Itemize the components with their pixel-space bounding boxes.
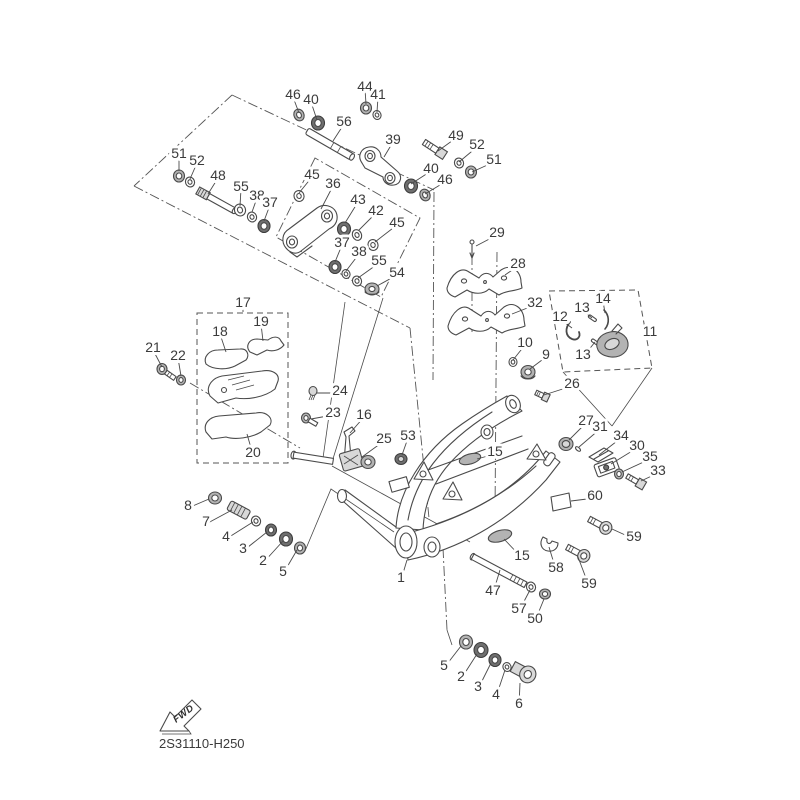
callout-11-33: 11 bbox=[643, 323, 658, 339]
callout-23-53: 23 bbox=[325, 404, 341, 420]
callout-51-9: 51 bbox=[171, 145, 187, 161]
part-54-collar-flanged bbox=[365, 283, 379, 295]
part-40-bearing-a bbox=[312, 116, 325, 130]
callout-38-21: 38 bbox=[351, 243, 367, 259]
callout-3-72: 3 bbox=[474, 678, 482, 694]
callout-7-61: 7 bbox=[202, 513, 210, 529]
part-29-pin bbox=[470, 240, 474, 258]
part-51-nut-b bbox=[466, 166, 477, 178]
part-7-adjuster-plug bbox=[227, 501, 251, 520]
callout-3-63: 3 bbox=[239, 540, 247, 556]
callout-49-6: 49 bbox=[448, 127, 464, 143]
callout-6-74: 6 bbox=[515, 695, 523, 711]
callout-56-4: 56 bbox=[336, 113, 352, 129]
callout-50-69: 50 bbox=[527, 610, 543, 626]
callout-36-16: 36 bbox=[325, 175, 341, 191]
parts-diagram-page: 4640444156394952515152485538374536434245… bbox=[0, 0, 800, 800]
callout-48-11: 48 bbox=[210, 167, 226, 183]
callout-13-30: 13 bbox=[574, 299, 590, 315]
callout-52-10: 52 bbox=[189, 152, 205, 168]
part-10-washer bbox=[509, 358, 517, 367]
callout-31-38: 31 bbox=[592, 418, 608, 434]
callout-26-36: 26 bbox=[564, 375, 580, 391]
callout-16-54: 16 bbox=[356, 406, 372, 422]
callout-59-44: 59 bbox=[626, 528, 642, 544]
part-31-pin bbox=[575, 446, 582, 452]
callout-37-20: 37 bbox=[334, 234, 350, 250]
part-12-clip bbox=[566, 322, 579, 340]
part-52-washer-left bbox=[184, 176, 196, 188]
callout-29-26: 29 bbox=[489, 224, 505, 240]
callout-55-12: 55 bbox=[233, 178, 249, 194]
part-48-bolt bbox=[196, 187, 238, 215]
part-3-seal-b bbox=[489, 654, 501, 667]
callout-24-52: 24 bbox=[332, 382, 348, 398]
part-36-relay-arm bbox=[283, 205, 337, 257]
callout-52-7: 52 bbox=[469, 136, 485, 152]
part-59-bolt-a bbox=[586, 513, 614, 536]
callout-2-71: 2 bbox=[457, 668, 465, 684]
part-5-washer-b bbox=[460, 635, 473, 649]
diagram-canvas: 4640444156394952515152485538374536434245… bbox=[0, 0, 800, 800]
callout-33-42: 33 bbox=[650, 462, 666, 478]
part-46-seal-a bbox=[292, 107, 306, 122]
callout-55-22: 55 bbox=[371, 252, 387, 268]
callout-19-49: 19 bbox=[253, 313, 269, 329]
part-3-seal-a bbox=[266, 524, 277, 536]
part-26-bolt bbox=[534, 389, 550, 402]
part-60-label-plate bbox=[551, 493, 571, 511]
part-8-nut bbox=[209, 492, 222, 504]
callout-45-15: 45 bbox=[304, 166, 320, 182]
callout-10-34: 10 bbox=[517, 334, 533, 350]
callout-5-65: 5 bbox=[279, 563, 287, 579]
callout-47-67: 47 bbox=[485, 582, 501, 598]
callout-53-56: 53 bbox=[400, 427, 416, 443]
part-24-bolt bbox=[309, 387, 317, 401]
part-38-washer-b bbox=[341, 268, 352, 279]
callout-8-60: 8 bbox=[184, 497, 192, 513]
callout-25-55: 25 bbox=[376, 430, 392, 446]
part-46-seal-b bbox=[418, 187, 432, 202]
part-42-collar bbox=[351, 228, 364, 242]
callout-40-1: 40 bbox=[303, 91, 319, 107]
part-2-bearing-a bbox=[280, 532, 293, 546]
callout-2-64: 2 bbox=[259, 552, 267, 568]
callout-20-57: 20 bbox=[245, 444, 261, 460]
callout-58-45: 58 bbox=[548, 559, 564, 575]
part-11-chain-tensioner bbox=[597, 324, 628, 357]
part-6-plug bbox=[509, 659, 539, 686]
part-22-bushing bbox=[177, 375, 186, 385]
part-49-bolt bbox=[422, 138, 448, 159]
callout-18-48: 18 bbox=[212, 323, 228, 339]
part-39-relay-bracket bbox=[360, 147, 401, 185]
part-37-bearing-a bbox=[258, 220, 270, 233]
part-38-washer-a bbox=[246, 211, 258, 223]
part-25-pivot-shaft bbox=[290, 448, 375, 471]
callout-51-8: 51 bbox=[486, 151, 502, 167]
callout-13-32: 13 bbox=[575, 346, 591, 362]
fwd-arrow: FWD bbox=[160, 700, 201, 734]
part-18-guard bbox=[205, 349, 248, 369]
callout-59-46: 59 bbox=[581, 575, 597, 591]
callout-15-59: 15 bbox=[514, 547, 530, 563]
part-28-plate bbox=[447, 267, 522, 297]
part-33-bolt bbox=[625, 472, 647, 490]
callout-34-39: 34 bbox=[613, 427, 629, 443]
part-56-shaft bbox=[305, 128, 355, 161]
callout-37-14: 37 bbox=[262, 194, 278, 210]
part-17-case-assembly bbox=[208, 371, 278, 403]
part-20-slider bbox=[205, 413, 271, 439]
callout-39-5: 39 bbox=[385, 131, 401, 147]
callout-60-43: 60 bbox=[587, 487, 603, 503]
callout-4-73: 4 bbox=[492, 686, 500, 702]
callout-4-62: 4 bbox=[222, 528, 230, 544]
callout-9-35: 9 bbox=[542, 346, 550, 362]
callout-21-50: 21 bbox=[145, 339, 161, 355]
callout-1-66: 1 bbox=[397, 569, 405, 585]
part-19-seal-guard bbox=[248, 337, 284, 355]
leader-line-4-62 bbox=[226, 522, 253, 539]
callout-46-25: 46 bbox=[437, 171, 453, 187]
part-45-washer-a bbox=[292, 189, 305, 203]
callout-57-68: 57 bbox=[511, 600, 527, 616]
part-23-bolt bbox=[302, 413, 318, 426]
callout-15-58: 15 bbox=[487, 443, 503, 459]
part-9-bushing bbox=[521, 366, 535, 380]
callout-5-70: 5 bbox=[440, 657, 448, 673]
part-50-nut bbox=[540, 589, 551, 599]
callout-42-18: 42 bbox=[368, 202, 384, 218]
callout-17-47: 17 bbox=[235, 294, 251, 310]
callout-22-51: 22 bbox=[170, 347, 186, 363]
part-35-nut bbox=[615, 469, 624, 479]
part-37-bearing-b bbox=[329, 261, 341, 274]
part-21-bolt bbox=[157, 364, 176, 381]
part-32-plate bbox=[448, 305, 525, 335]
callout-12-31: 12 bbox=[552, 308, 568, 324]
callout-54-23: 54 bbox=[389, 264, 405, 280]
callout-41-3: 41 bbox=[370, 86, 386, 102]
part-4-washer-a bbox=[250, 515, 262, 527]
callout-43-17: 43 bbox=[350, 191, 366, 207]
part-59-bolt-b bbox=[564, 541, 592, 564]
callout-14-29: 14 bbox=[595, 290, 611, 306]
callout-28-27: 28 bbox=[510, 255, 526, 271]
diagram-code: 2S31110-H250 bbox=[159, 736, 245, 751]
callout-32-28: 32 bbox=[527, 294, 543, 310]
callout-45-19: 45 bbox=[389, 214, 405, 230]
part-27-cap bbox=[559, 438, 573, 451]
part-53-nut bbox=[395, 454, 407, 465]
callout-46-0: 46 bbox=[285, 86, 301, 102]
part-51-nut-left bbox=[174, 170, 185, 182]
